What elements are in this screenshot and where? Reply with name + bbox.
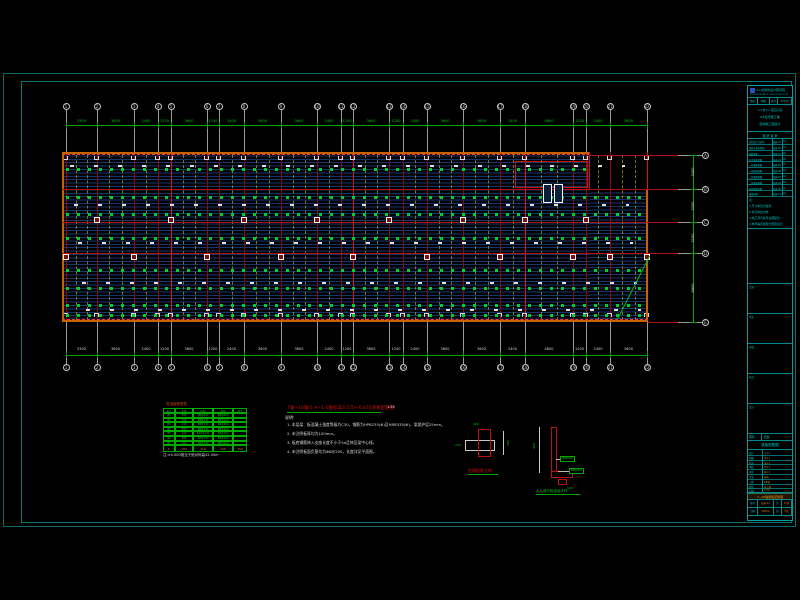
sign-box-label: 会签 bbox=[749, 285, 754, 289]
column-symbol bbox=[168, 217, 174, 223]
note-item: 1. 本层梁、板混凝土强度等级为C30，钢筋为HPB235(Φ)及HRB335(… bbox=[287, 422, 445, 428]
edge-mark bbox=[460, 156, 465, 160]
dim-text-top: 2400 bbox=[223, 119, 241, 123]
grid-bubble-right: B bbox=[702, 186, 709, 193]
grid-bubble-right: D bbox=[702, 250, 709, 257]
grid-bubble-bottom: 3 bbox=[131, 364, 138, 371]
edge-mark bbox=[400, 156, 405, 160]
grid-bubble-bottom: 11 bbox=[338, 364, 345, 371]
company-logo-icon bbox=[750, 88, 755, 93]
sheet-class-label: 图别 bbox=[749, 434, 762, 441]
grid-leader-top bbox=[171, 110, 172, 152]
dim-text-bottom: 3600 bbox=[473, 347, 491, 351]
drawing-list-size: A2 bbox=[783, 192, 791, 195]
tb-row-value: 6#楼 bbox=[764, 480, 791, 484]
titleblock-note-line: 4.未尽事宜按现行规范执行。 bbox=[749, 222, 791, 226]
grid-bubble-top: 20 bbox=[583, 103, 590, 110]
tb-footer-cell: 共 bbox=[774, 500, 782, 508]
grid-bubble-bottom: 17 bbox=[497, 364, 504, 371]
drawing-list-size: A2 bbox=[783, 175, 791, 178]
column-symbol bbox=[204, 254, 210, 260]
titleblock-section: ××市××花园小区6#住宅楼工程结构施工图设计 bbox=[748, 105, 792, 132]
dim-text-top: 1200 bbox=[338, 119, 356, 123]
dim-text-bottom: 1200 bbox=[204, 347, 222, 351]
grid-bubble-top: 7 bbox=[216, 103, 223, 110]
column-symbol bbox=[350, 254, 356, 260]
caption-underline bbox=[468, 474, 498, 475]
floor-plan: 1122334455667788991010111112121313141415… bbox=[0, 0, 800, 600]
tb-footer-cell: 图号 bbox=[748, 500, 758, 508]
drawing-list-no: 结施-02 bbox=[773, 146, 782, 150]
title-underline bbox=[287, 412, 381, 413]
edge-mark bbox=[278, 156, 283, 160]
grid-leader-top bbox=[647, 110, 648, 152]
edge-mark bbox=[155, 156, 160, 160]
grid-bubble-top: 6 bbox=[204, 103, 211, 110]
grid-leader-top bbox=[403, 110, 404, 152]
grid-bubble-bottom: 8 bbox=[241, 364, 248, 371]
grid-leader-top bbox=[525, 110, 526, 152]
dim-text-bottom: 2400 bbox=[406, 347, 424, 351]
column-symbol bbox=[278, 254, 284, 260]
row-line-ext bbox=[648, 189, 678, 190]
grid-bubble-bottom: 4 bbox=[155, 364, 162, 371]
grid-bubble-bottom: 2 bbox=[94, 364, 101, 371]
dim-text-bottom: 1200 bbox=[156, 347, 174, 351]
drawing-list-no: 结施-06 bbox=[773, 169, 782, 173]
grid-bubble-right: E bbox=[702, 319, 709, 326]
dim-text: 300 bbox=[506, 440, 510, 446]
schedule-footer-cell: 100 bbox=[175, 445, 193, 452]
grid-bubble-top: 13 bbox=[386, 103, 393, 110]
dim-text-bottom: 1200 bbox=[387, 347, 405, 351]
dim-text-top: 1200 bbox=[204, 119, 222, 123]
grid-leader-top bbox=[573, 110, 574, 152]
tb-row-value: 刘×× bbox=[764, 465, 791, 469]
grid-leader-top bbox=[317, 110, 318, 152]
grid-bubble-bottom: 13 bbox=[386, 364, 393, 371]
titleblock-section: 梁板配筋图 bbox=[748, 441, 792, 450]
edge-mark bbox=[570, 156, 575, 160]
grid-bubble-top: 19 bbox=[570, 103, 577, 110]
titleblock-section: 设计 bbox=[748, 404, 792, 434]
edge-mark bbox=[583, 156, 588, 160]
drawing-list-size: A2 bbox=[783, 152, 791, 155]
cert-cell: A0123 bbox=[778, 98, 792, 105]
plan-edge-bottom-dash bbox=[62, 319, 648, 320]
column-symbol bbox=[522, 217, 528, 223]
grid-bubble-top: 14 bbox=[400, 103, 407, 110]
rebar-tick-band bbox=[66, 304, 644, 307]
titleblock-section: 图 纸 目 录 bbox=[748, 132, 792, 139]
drawing-list-name: 屋面梁配筋图 bbox=[749, 187, 772, 191]
grid-leader-top bbox=[427, 110, 428, 152]
grid-leader-top bbox=[463, 110, 464, 152]
rebar-tag: Φ8@200 bbox=[560, 456, 575, 462]
titleblock-section: 注:1.尺寸单位为毫米;2.标高单位为米;3.施工须与各专业图配合;4.未尽事宜… bbox=[748, 197, 792, 229]
grid-bubble-bottom: 21 bbox=[607, 364, 614, 371]
dim-text-top: 2400 bbox=[320, 119, 338, 123]
cad-drawing-sheet: 1122334455667788991010111112121313141415… bbox=[0, 0, 800, 600]
dim-text-bottom: 2400 bbox=[137, 347, 155, 351]
dim-text-bottom: 2400 bbox=[320, 347, 338, 351]
grid-leader-top bbox=[610, 110, 611, 152]
grid-leader-top bbox=[586, 110, 587, 152]
grid-bubble-top: 9 bbox=[278, 103, 285, 110]
grid-bubble-top: 21 bbox=[607, 103, 614, 110]
titleblock-section bbox=[748, 229, 792, 284]
grid-leader-top bbox=[66, 110, 67, 152]
tb-footer-cell: 日期 bbox=[748, 508, 758, 516]
column-symbol bbox=[424, 254, 430, 260]
stair-flight bbox=[554, 184, 563, 203]
list-divider bbox=[772, 139, 773, 197]
grid-bubble-bottom: 1 bbox=[63, 364, 70, 371]
edge-mark bbox=[94, 156, 99, 160]
dim-text: 600 bbox=[532, 443, 536, 449]
drawing-list-name: 二层板配筋图 bbox=[749, 181, 772, 185]
grid-leader-top bbox=[341, 110, 342, 152]
grid-bubble-right: C bbox=[702, 219, 709, 226]
drawing-list-name: 基础详图 bbox=[749, 152, 772, 156]
dim-text-top: 2400 bbox=[504, 119, 522, 123]
tb-row-value: 陈×× bbox=[764, 470, 791, 474]
grid-leader-top bbox=[389, 110, 390, 152]
dim-text-bottom: 3600 bbox=[107, 347, 125, 351]
rebar-tick-band bbox=[66, 213, 644, 216]
tb-row-label: 工程 bbox=[749, 480, 762, 484]
rebar-tick-band bbox=[66, 168, 586, 171]
detail-curb-outline bbox=[558, 479, 567, 485]
grid-leader-top bbox=[219, 110, 220, 152]
sheet-class-value: 结施 bbox=[764, 434, 791, 441]
edge-mark bbox=[350, 156, 355, 160]
dim-text-bottom: 3600 bbox=[180, 347, 198, 351]
drawing-list-no: 结施-09 bbox=[773, 187, 782, 191]
grid-bubble-bottom: 20 bbox=[583, 364, 590, 371]
grid-bubble-bottom: 16 bbox=[460, 364, 467, 371]
tb-row-value: 结构 bbox=[764, 475, 791, 479]
edge-mark bbox=[644, 156, 649, 160]
dim-text-top: 3600 bbox=[254, 119, 272, 123]
column-symbol bbox=[241, 217, 247, 223]
detail-column-outline bbox=[478, 429, 491, 457]
row-line-ext bbox=[590, 155, 678, 156]
dim-line bbox=[539, 427, 540, 473]
dim-text-bottom: 4800 bbox=[540, 347, 558, 351]
row-grid-line bbox=[62, 222, 648, 223]
tb-row-value: 张×× bbox=[764, 461, 791, 465]
drawing-list-name: 二层梁配筋图 bbox=[749, 175, 772, 179]
grid-bubble-bottom: 19 bbox=[570, 364, 577, 371]
cert-cell: 甲级 bbox=[758, 98, 770, 105]
column-symbol bbox=[497, 254, 503, 260]
cert-cell: 编号 bbox=[770, 98, 778, 105]
edge-mark bbox=[168, 156, 173, 160]
drawing-list-no: 结施-08 bbox=[773, 181, 782, 185]
column-symbol bbox=[583, 217, 589, 223]
drawing-list-name: 结构设计总说明 bbox=[749, 140, 772, 144]
column-symbol bbox=[460, 217, 466, 223]
drawing-list-size: A2 bbox=[783, 187, 791, 190]
grid-bubble-bottom: 22 bbox=[644, 364, 651, 371]
grid-bubble-bottom: 14 bbox=[400, 364, 407, 371]
tb-footer-cell: 2008.6 bbox=[758, 508, 774, 516]
edge-mark bbox=[314, 156, 319, 160]
titleblock-note-line: 1.尺寸单位为毫米; bbox=[749, 204, 791, 208]
titleblock-section: 7~16轴梁板配筋图 bbox=[748, 493, 792, 500]
grid-bubble-top: 1 bbox=[63, 103, 70, 110]
sign-box-label: 审定 bbox=[749, 315, 754, 319]
rebar-tick-band bbox=[66, 269, 644, 272]
row-line-ext bbox=[648, 222, 678, 223]
grid-bubble-top: 12 bbox=[350, 103, 357, 110]
drawing-list-no: 结施-05 bbox=[773, 163, 782, 167]
drawing-list-name: 柱平面布置图 bbox=[749, 158, 772, 162]
titleblock-section: 图别结施 bbox=[748, 434, 792, 441]
dim-text-top: 2400 bbox=[589, 119, 607, 123]
drawing-list-no: 结施-10 bbox=[773, 192, 782, 196]
dim-line-bottom bbox=[66, 355, 647, 356]
beam-label-band bbox=[78, 242, 633, 244]
drawing-list-no: 结施-04 bbox=[773, 158, 782, 162]
tb-footer-cell: 第 bbox=[774, 508, 782, 516]
beam-label-band bbox=[74, 204, 629, 206]
titleblock-section: 校对 bbox=[748, 374, 792, 404]
grid-bubble-top: 22 bbox=[644, 103, 651, 110]
stair-flight bbox=[543, 184, 552, 203]
column-symbol bbox=[314, 217, 320, 223]
sign-box-label: 校对 bbox=[749, 375, 754, 379]
grid-bubble-bottom: 10 bbox=[314, 364, 321, 371]
sign-box-label: 审核 bbox=[749, 345, 754, 349]
dim-text-top: 3600 bbox=[362, 119, 380, 123]
tb-row-label: 校对 bbox=[749, 461, 762, 465]
tb-footer-cell: 5张 bbox=[782, 508, 792, 516]
rebar-schedule-table: 板号板厚底筋面筋备注B1100Φ8@150Φ8@200B2100Φ8@140Φ8… bbox=[163, 408, 247, 452]
column-symbol bbox=[63, 254, 69, 260]
dim-text-bottom: 2400 bbox=[589, 347, 607, 351]
leader-line bbox=[558, 471, 569, 472]
plan-edge-left bbox=[62, 152, 64, 322]
edge-mark bbox=[386, 156, 391, 160]
titleblock-section: 资质甲级编号A0123 bbox=[748, 98, 792, 105]
schedule-footer-cell: 120 bbox=[213, 445, 233, 452]
grid-bubble-bottom: 12 bbox=[350, 364, 357, 371]
notes-heading: 说明: bbox=[285, 415, 294, 421]
dim-text-top: 3600 bbox=[290, 119, 308, 123]
grid-bubble-bottom: 18 bbox=[522, 364, 529, 371]
drawing-scale: 1:50 bbox=[387, 405, 395, 409]
tb-row-label: 制图 bbox=[749, 456, 762, 460]
column-symbol bbox=[386, 217, 392, 223]
rebar-tick-band bbox=[66, 237, 644, 240]
drawing-list-name: 楼梯详图 bbox=[749, 192, 772, 196]
grid-leader-top bbox=[97, 110, 98, 152]
dim-text-right: 3100 bbox=[691, 229, 695, 247]
titleblock-section: 设计王××制图李××校对张××审核刘××审定陈××专业结构工程6#楼阶段施工图比… bbox=[748, 450, 792, 493]
grid-line-vertical bbox=[610, 142, 611, 330]
project-name-line: 结构施工图设计 bbox=[748, 122, 792, 126]
grid-leader-top bbox=[353, 110, 354, 152]
dim-text-top: 1200 bbox=[387, 119, 405, 123]
plan-edge-top-dash bbox=[62, 154, 590, 155]
grid-bubble-bottom: 5 bbox=[168, 364, 175, 371]
tb-footer-cell: 12张 bbox=[782, 500, 792, 508]
drawing-list-name: 一层梁配筋图 bbox=[749, 163, 772, 167]
drawing-list-size: A2 bbox=[783, 163, 791, 166]
company-name-en: PROVINCIAL ARCH. DESIGN INSTITUTE bbox=[750, 94, 791, 96]
grid-leader-top bbox=[281, 110, 282, 152]
grid-bubble-top: 16 bbox=[460, 103, 467, 110]
grid-bubble-top: 4 bbox=[155, 103, 162, 110]
title-block: ××省建筑设计研究院PROVINCIAL ARCH. DESIGN INSTIT… bbox=[747, 85, 793, 521]
grid-bubble-bottom: 9 bbox=[278, 364, 285, 371]
dim-text-top: 3600 bbox=[620, 119, 638, 123]
column-symbol bbox=[570, 254, 576, 260]
titleblock-note-line: 3.施工须与各专业图配合; bbox=[749, 216, 791, 220]
edge-mark bbox=[241, 156, 246, 160]
drawing-list-size: A2 bbox=[783, 181, 791, 184]
edge-mark bbox=[216, 156, 221, 160]
row-line-ext bbox=[648, 322, 678, 323]
drawing-list-size: A2 bbox=[783, 169, 791, 172]
column-symbol bbox=[94, 217, 100, 223]
dim-line-top bbox=[66, 125, 647, 126]
sheet-name: 梁板配筋图 bbox=[748, 443, 792, 448]
schedule-footer-cell: h bbox=[163, 445, 175, 452]
grid-leader-top bbox=[500, 110, 501, 152]
drawing-list-no: 结施-07 bbox=[773, 175, 782, 179]
rebar-tag: Φ8@200 bbox=[569, 468, 584, 474]
titleblock-note-line: 2.标高单位为米; bbox=[749, 210, 791, 214]
tb-row-label: 设计 bbox=[749, 451, 762, 455]
titleblock-section: ××省建筑设计研究院PROVINCIAL ARCH. DESIGN INSTIT… bbox=[748, 86, 792, 98]
beam-label-band bbox=[86, 309, 641, 311]
tb-row-value: 施工图 bbox=[764, 485, 791, 489]
grid-bubble-top: 17 bbox=[497, 103, 504, 110]
drawing-title: 7轴~16轴/1-A~1-E轴标高3.570~6.870梁板配筋图 bbox=[287, 405, 394, 411]
dim-text-bottom: 1200 bbox=[338, 347, 356, 351]
drawing-list-no: 结施-03 bbox=[773, 152, 782, 156]
grid-bubble-top: 3 bbox=[131, 103, 138, 110]
edge-mark bbox=[497, 156, 502, 160]
drawing-list-size: A2 bbox=[783, 140, 791, 143]
schedule-title: 现浇板配筋表 bbox=[166, 402, 187, 407]
column-symbol bbox=[607, 254, 613, 260]
grid-bubble-top: 10 bbox=[314, 103, 321, 110]
caption-underline bbox=[536, 494, 580, 495]
sign-box-label: 设计 bbox=[749, 405, 754, 409]
dim-tick bbox=[690, 322, 697, 323]
dim-text-right: 3400 bbox=[691, 163, 695, 181]
grid-bubble-top: 18 bbox=[522, 103, 529, 110]
grid-bubble-right: A bbox=[702, 152, 709, 159]
dim-text-bottom: 3600 bbox=[254, 347, 272, 351]
edge-mark bbox=[607, 156, 612, 160]
tb-row-value: 王×× bbox=[764, 451, 791, 455]
dim-text-top: 1200 bbox=[571, 119, 589, 123]
titleblock-section: 审核 bbox=[748, 344, 792, 374]
drawing-list-size: A2 bbox=[783, 158, 791, 161]
grid-bubble-top: 5 bbox=[168, 103, 175, 110]
tb-footer-cell: 结施-12 bbox=[758, 500, 774, 508]
detail-wall-outline bbox=[551, 427, 557, 472]
drawing-list-no: 结施-01 bbox=[773, 140, 782, 144]
dim-tick bbox=[647, 122, 648, 129]
titleblock-note-line: 注: bbox=[749, 198, 791, 202]
note-item: 4. 未注明板面负筋均为Φ8@200，长度详见平面图。 bbox=[287, 449, 377, 455]
edge-mark bbox=[522, 156, 527, 160]
dim-text-top: 3600 bbox=[436, 119, 454, 123]
drawing-list-size: A2 bbox=[783, 146, 791, 149]
tb-row-label: 审定 bbox=[749, 470, 762, 474]
grid-bubble-top: 11 bbox=[338, 103, 345, 110]
dim-text-top: 3300 bbox=[73, 119, 91, 123]
titleblock-section: 会签 bbox=[748, 284, 792, 314]
rebar-tick-band bbox=[66, 287, 644, 290]
cert-cell: 资质 bbox=[748, 98, 758, 105]
grid-leader-top bbox=[207, 110, 208, 152]
grid-leader-top bbox=[134, 110, 135, 152]
list-divider bbox=[782, 139, 783, 197]
dim-text-right: 3300 bbox=[691, 197, 695, 215]
titleblock-section: 图号结施-12共12张 bbox=[748, 500, 792, 508]
tb-row-value: 1:50 bbox=[764, 489, 791, 492]
dim-text-top: 3600 bbox=[180, 119, 198, 123]
rebar-tick-band bbox=[66, 314, 644, 317]
dim-text-bottom: 2400 bbox=[504, 347, 522, 351]
tb-row-label: 审核 bbox=[749, 465, 762, 469]
grid-bubble-top: 15 bbox=[424, 103, 431, 110]
dim-text-top: 2400 bbox=[137, 119, 155, 123]
schedule-footer-cell: 150 bbox=[233, 445, 247, 452]
edge-mark bbox=[338, 156, 343, 160]
drawing-list-name: 一层板配筋图 bbox=[749, 169, 772, 173]
note-item: 3. 板底钢筋伸入支座长度不小于5d且伸至梁中心线。 bbox=[287, 440, 376, 446]
row-line-ext bbox=[648, 253, 678, 254]
dim-line bbox=[503, 431, 504, 455]
dim-text-top: 4800 bbox=[540, 119, 558, 123]
column-symbol bbox=[131, 254, 137, 260]
tb-highlight-row: 7~16轴梁板配筋图 bbox=[748, 495, 792, 499]
dim-text-right: 6900 bbox=[691, 279, 695, 297]
grid-bubble-bottom: 6 bbox=[204, 364, 211, 371]
tb-row-value: 李×× bbox=[764, 456, 791, 460]
dim-text-top: 1200 bbox=[156, 119, 174, 123]
grid-bubble-top: 2 bbox=[94, 103, 101, 110]
dim-tick bbox=[647, 351, 648, 358]
project-name-line: ××市××花园小区 bbox=[748, 108, 792, 112]
dim-text-top: 2400 bbox=[406, 119, 424, 123]
dim-text: 150 bbox=[455, 443, 461, 447]
edge-mark bbox=[131, 156, 136, 160]
titleblock-section: 日期2008.6第5张 bbox=[748, 508, 792, 516]
dim-text-bottom: 2400 bbox=[223, 347, 241, 351]
drawing-list-name: 基础平面布置图 bbox=[749, 146, 772, 150]
dim-text-top: 3600 bbox=[473, 119, 491, 123]
company-name: ××省建筑设计研究院 bbox=[756, 88, 791, 92]
grid-leader-top bbox=[244, 110, 245, 152]
dim-text-bottom: 3300 bbox=[73, 347, 91, 351]
grid-bubble-bottom: 15 bbox=[424, 364, 431, 371]
tb-row-label: 专业 bbox=[749, 475, 762, 479]
note-item: 2. 未注明板厚均为100mm。 bbox=[287, 431, 337, 437]
beam-label-band bbox=[82, 282, 637, 284]
drawing-list-title: 图 纸 目 录 bbox=[748, 134, 792, 138]
tb-divider bbox=[762, 450, 763, 493]
grid-bubble-top: 8 bbox=[241, 103, 248, 110]
